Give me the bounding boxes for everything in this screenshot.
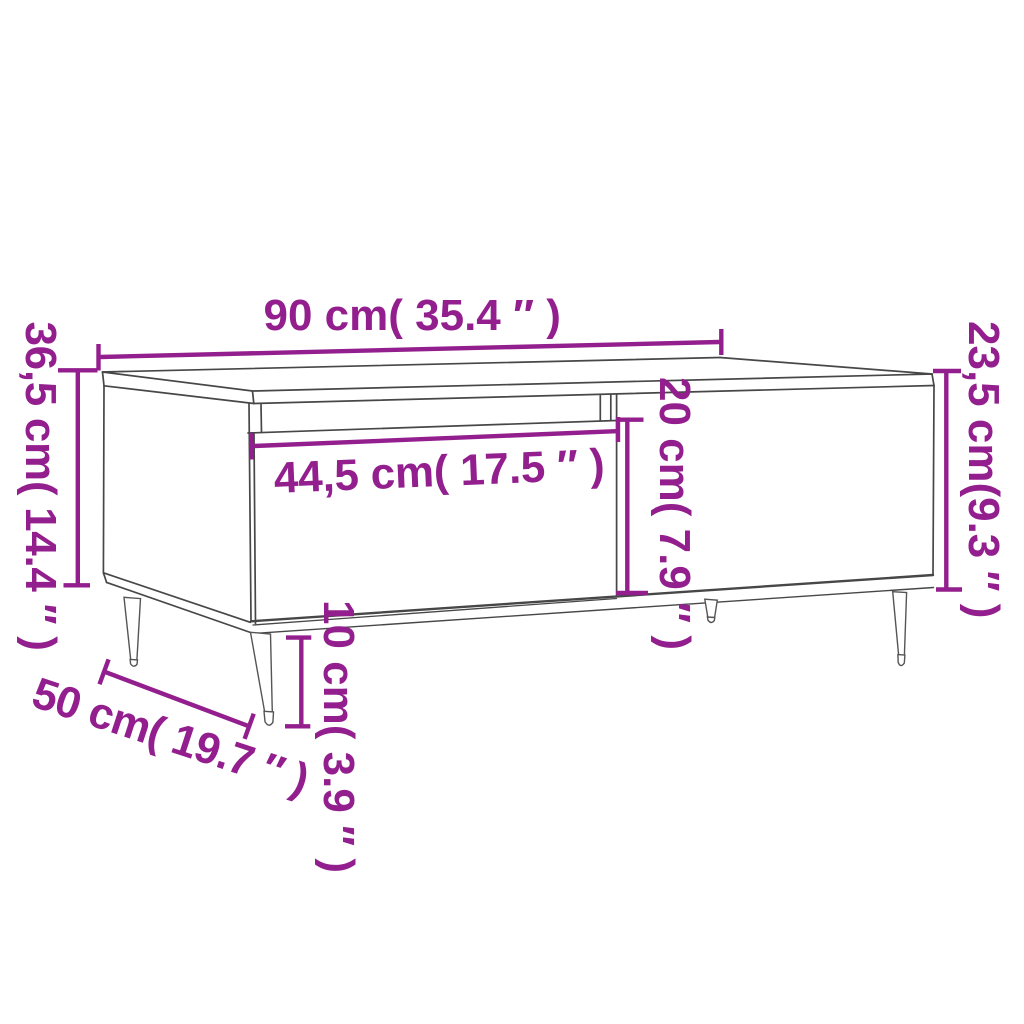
svg-text:10 cm( 3.9 ″ ): 10 cm( 3.9 ″ ): [314, 600, 363, 873]
svg-text:23,5 cm(9.3 ″ ): 23,5 cm(9.3 ″ ): [959, 321, 1008, 618]
svg-text:36,5 cm( 14.4 ″ ): 36,5 cm( 14.4 ″ ): [16, 322, 65, 651]
svg-text:44,5 cm( 17.5 ″ ): 44,5 cm( 17.5 ″ ): [273, 440, 606, 503]
svg-text:90 cm( 35.4 ″ ): 90 cm( 35.4 ″ ): [264, 291, 561, 340]
svg-text:20 cm( 7.9 ″ ): 20 cm( 7.9 ″ ): [650, 377, 699, 650]
